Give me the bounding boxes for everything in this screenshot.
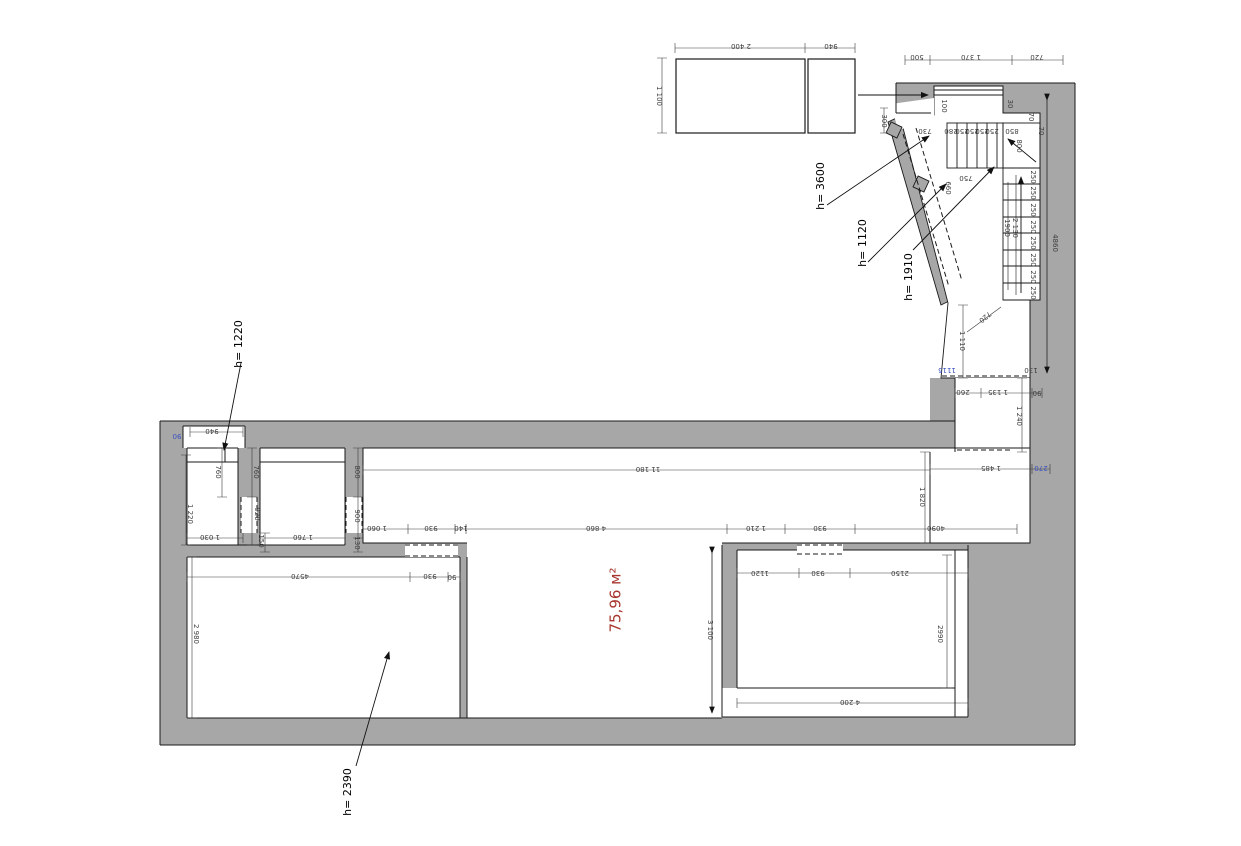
dim-label: 500: [910, 53, 923, 61]
dim-label: 2 130: [1011, 218, 1019, 238]
height-note-label: h= 1910: [902, 253, 915, 301]
dim-label: 1 220: [186, 504, 194, 524]
detail-boxes: [676, 59, 855, 133]
room-bottom-left: [187, 557, 460, 718]
dim-label: 920: [253, 507, 261, 520]
dim-label: 100: [940, 99, 948, 112]
floor-plan-canvas: 2 4009401 1005001 3707201003070300730280…: [0, 0, 1241, 846]
dim-label: 1900: [1003, 219, 1011, 237]
room-small-2: [260, 448, 345, 545]
dim-label: 90: [448, 573, 457, 581]
opening-room-br: [797, 544, 843, 555]
dim-label: 250: [1029, 203, 1037, 216]
room-bottom-right-strip: [722, 688, 737, 717]
dim-label: 1 485: [981, 464, 1001, 472]
dim-label: 150: [257, 534, 265, 547]
right-step-wall: [1030, 300, 1042, 452]
dim-label: 260: [956, 388, 969, 396]
dim-label: 1 210: [746, 524, 766, 532]
dim-label: 250: [1029, 236, 1037, 249]
dim-label: 140: [454, 524, 467, 532]
dim-label: 900: [353, 509, 361, 522]
area-label: 75,96 м²: [607, 567, 625, 632]
dim-label: 1120: [751, 569, 769, 577]
dim-label: 800: [1015, 139, 1023, 152]
height-note-label: h= 3600: [814, 162, 827, 210]
dim-label: 2150: [891, 569, 909, 577]
dim-label: 250: [1029, 253, 1037, 266]
dim-label: 250: [1029, 220, 1037, 233]
dim-label: 930: [423, 572, 436, 580]
dim-label: 2 400: [731, 42, 751, 50]
dim-label: 720: [1030, 53, 1043, 61]
dim-label: 850: [1005, 127, 1018, 135]
dim-label: 1115: [938, 366, 956, 374]
dim-label: 250: [985, 127, 998, 135]
dim-label: 940: [824, 42, 837, 50]
dim-label: 4570: [291, 572, 309, 580]
dim-label: 3 100: [706, 620, 714, 640]
dim-label: 1 760: [293, 533, 313, 541]
height-note-label: h= 2390: [341, 768, 354, 816]
dim-label: 1 135: [988, 388, 1008, 396]
dim-label: 4 860: [586, 524, 606, 532]
dim-label: 250: [1029, 286, 1037, 299]
dim-label: 930: [811, 569, 824, 577]
dim-label: 90: [173, 432, 182, 440]
detail-box-large: [676, 59, 805, 133]
dim-label: 1 240: [1015, 406, 1023, 426]
right-outer-wall: [1040, 83, 1075, 745]
dim-label: 930: [813, 524, 826, 532]
dim-label: 300: [880, 114, 888, 127]
dim-label: 90: [1033, 389, 1042, 397]
dim-label: 2990: [936, 625, 944, 643]
dim-label: 130: [353, 536, 361, 549]
room-bottom-right: [737, 550, 968, 717]
dim-label: 1 820: [918, 487, 926, 507]
floor-plan-svg: 2 4009401 1005001 3707201003070300730280…: [0, 0, 1241, 846]
dim-label: 250: [1029, 170, 1037, 183]
opening-room-bl: [405, 544, 458, 557]
dim-label: 70: [1037, 127, 1045, 136]
dim-label: 250: [1029, 270, 1037, 283]
dim-label: 250: [1029, 186, 1037, 199]
vestibule-left-wall: [930, 378, 955, 452]
dim-label: 660: [944, 181, 952, 194]
dim-label: 760: [214, 465, 222, 478]
dim-label: 760: [252, 465, 260, 478]
dim-label: 2 980: [192, 624, 200, 644]
dim-label: 930: [424, 524, 437, 532]
dim-label: 940: [205, 427, 218, 435]
height-note-label: h= 1220: [232, 320, 245, 368]
dim-label: 11 180: [636, 465, 661, 473]
dim-label: 800: [353, 465, 361, 478]
dim-label: 1 060: [367, 524, 387, 532]
height-note-label: h= 1120: [856, 219, 869, 267]
room-small-1: [187, 448, 238, 545]
dim-label: 270: [1034, 464, 1047, 472]
dim-label: 70: [1027, 113, 1035, 122]
dim-label: 1 110: [958, 331, 966, 351]
dim-label: 30: [1006, 100, 1014, 109]
dim-label: 130: [1024, 366, 1037, 374]
dim-label: 4860: [1051, 234, 1059, 252]
dim-label: 730: [918, 127, 931, 135]
dim-label: 4090: [927, 524, 945, 532]
room-middle: [467, 543, 722, 718]
dim-label: 1 370: [961, 53, 981, 61]
dim-label: 1 030: [200, 533, 220, 541]
detail-box-small: [808, 59, 855, 133]
dim-label: 1 100: [655, 86, 663, 106]
dim-label: 750: [959, 174, 972, 182]
dim-label: 4 200: [840, 698, 860, 706]
